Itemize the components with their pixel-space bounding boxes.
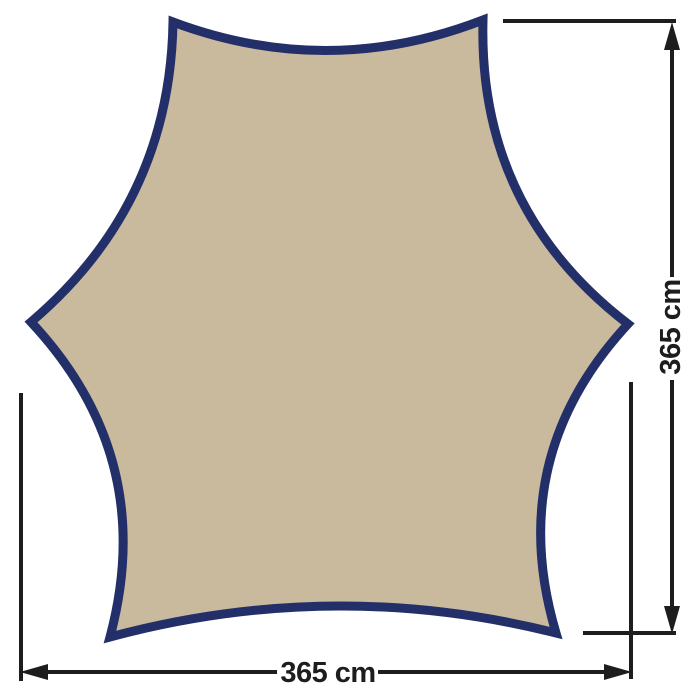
dimension-diagram: 365 cm 365 cm: [0, 0, 700, 700]
tarp-shape: [31, 20, 628, 637]
arrow-left-icon: [20, 664, 48, 680]
height-dimension-label: 365 cm: [655, 279, 687, 374]
arrow-up-icon: [664, 22, 680, 50]
diagram-canvas: 365 cm 365 cm: [0, 0, 700, 700]
width-dimension-label: 365 cm: [280, 657, 375, 689]
arrow-down-icon: [664, 606, 680, 634]
arrow-right-icon: [604, 664, 632, 680]
